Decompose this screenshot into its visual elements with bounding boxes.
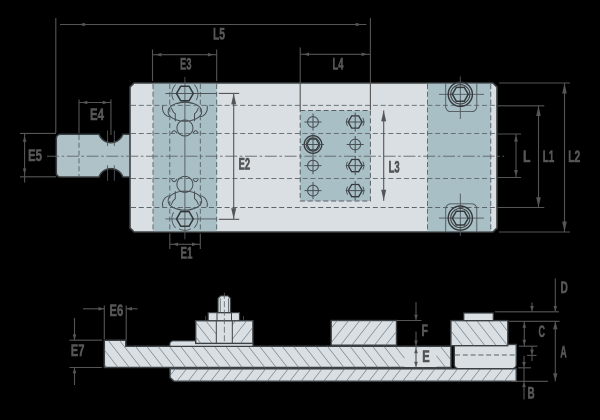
svg-text:C: C xyxy=(539,323,546,341)
svg-text:E: E xyxy=(422,348,430,366)
svg-text:E5: E5 xyxy=(28,147,42,165)
svg-text:D: D xyxy=(561,279,568,297)
svg-text:E6: E6 xyxy=(110,302,124,320)
svg-text:L: L xyxy=(523,148,531,166)
svg-text:L1: L1 xyxy=(543,148,555,166)
svg-text:E7: E7 xyxy=(71,342,85,360)
svg-text:E2: E2 xyxy=(239,156,251,174)
svg-text:L2: L2 xyxy=(568,148,580,166)
svg-text:E3: E3 xyxy=(180,55,192,73)
svg-text:E1: E1 xyxy=(181,244,193,262)
svg-text:F: F xyxy=(422,322,429,340)
svg-text:L5: L5 xyxy=(213,26,225,44)
svg-text:L3: L3 xyxy=(389,159,400,177)
svg-text:B: B xyxy=(528,385,535,403)
svg-text:E4: E4 xyxy=(90,106,105,124)
svg-text:A: A xyxy=(560,344,567,362)
svg-text:L4: L4 xyxy=(333,55,344,73)
